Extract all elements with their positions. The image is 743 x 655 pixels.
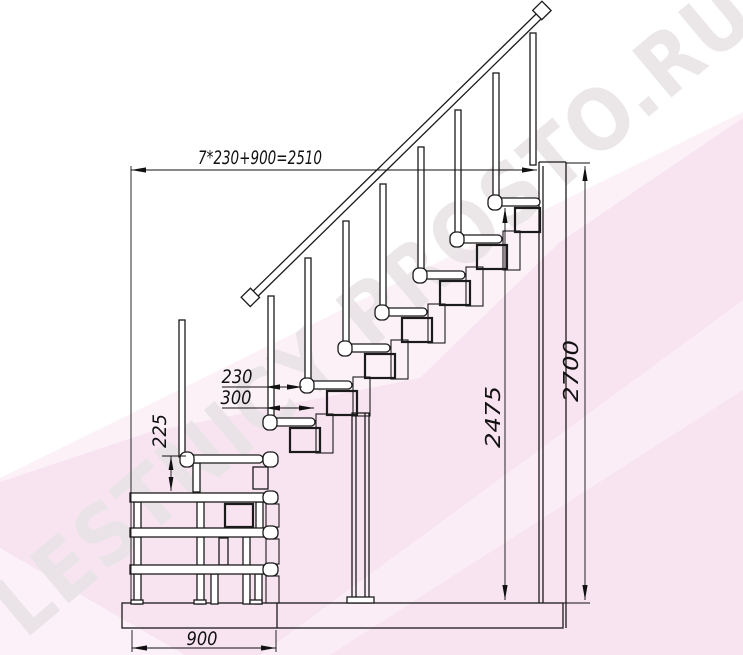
tread-support-leg — [193, 463, 200, 492]
tread-nose-cap — [263, 415, 277, 430]
dim-tread-depth-label: 300 — [221, 387, 252, 409]
dimension-arrow — [131, 167, 146, 172]
board-end-cap — [263, 491, 278, 504]
tread-nose-cap — [450, 232, 464, 247]
board-end-cap — [263, 526, 278, 539]
platform-post — [134, 537, 141, 566]
baluster — [343, 221, 349, 346]
platform-post — [197, 537, 204, 566]
tread-nose-cap — [180, 452, 194, 467]
platform-post — [243, 537, 250, 566]
tread-nose-cap — [338, 341, 352, 356]
post-foot — [194, 600, 206, 604]
baluster — [380, 184, 386, 310]
dim-step-run-label: 230 — [222, 366, 253, 388]
dim-overall-height-label: 2700 — [559, 340, 583, 402]
platform-board — [130, 565, 277, 574]
tread-nose-cap — [413, 268, 427, 283]
tread-nose-cap — [488, 195, 502, 210]
baluster — [305, 258, 311, 383]
platform-board — [130, 493, 277, 502]
staircase-elevation-drawing: LESTNICY PROSTO.RU LESTNICY PROSTO.RU — [0, 0, 743, 655]
board-end-cap — [263, 563, 278, 576]
tread-support-cap — [263, 452, 278, 467]
post-foot — [250, 600, 262, 604]
baluster — [268, 296, 274, 420]
tread-nose-cap — [300, 378, 314, 393]
baluster — [179, 320, 185, 457]
dim-step-rise-label: 225 — [149, 414, 171, 448]
platform-post — [197, 502, 204, 529]
baluster — [418, 147, 424, 273]
dim-total-run-label: 7*230+900=2510 — [198, 147, 322, 169]
step-tread — [183, 455, 263, 463]
platform-post — [134, 502, 141, 529]
column-foot — [347, 597, 374, 603]
post-foot — [131, 600, 143, 604]
tread-nose-cap — [375, 305, 389, 320]
dim-platform-depth-label: 900 — [187, 628, 218, 650]
drawing-canvas: LESTNICY PROSTO.RU LESTNICY PROSTO.RU — [0, 0, 743, 655]
baluster — [455, 110, 461, 237]
platform-post — [256, 502, 263, 529]
baluster — [493, 73, 499, 200]
platform-post — [211, 574, 218, 604]
platform-post — [243, 574, 250, 604]
dim-top-tread-height-label: 2475 — [481, 386, 505, 448]
baluster — [530, 33, 536, 165]
platform-board — [130, 528, 277, 537]
